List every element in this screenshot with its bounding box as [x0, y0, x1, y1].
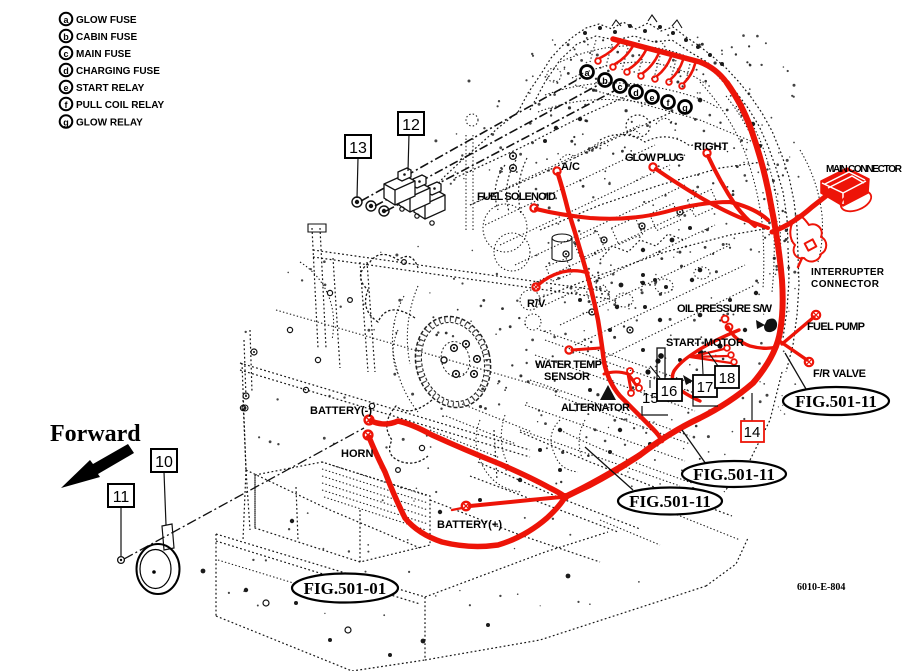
svg-text:10: 10: [155, 454, 173, 471]
svg-text:13: 13: [349, 140, 367, 157]
svg-text:BATTERY(-): BATTERY(-): [310, 405, 372, 417]
svg-text:START MOTOR: START MOTOR: [666, 337, 744, 349]
svg-text:e: e: [63, 83, 68, 93]
svg-text:F/R VALVE: F/R VALVE: [813, 368, 866, 380]
svg-text:R/V: R/V: [527, 298, 546, 310]
svg-text:GLOW RELAY: GLOW RELAY: [76, 118, 143, 129]
svg-text:GLOW FUSE: GLOW FUSE: [76, 15, 137, 26]
svg-text:HORN: HORN: [341, 448, 373, 460]
svg-text:c: c: [63, 49, 68, 59]
svg-text:INTERRUPTER: INTERRUPTER: [811, 267, 885, 278]
svg-text:CABIN FUSE: CABIN FUSE: [76, 32, 137, 43]
svg-text:12: 12: [402, 117, 420, 134]
svg-text:18: 18: [719, 370, 736, 387]
svg-text:b: b: [602, 76, 608, 86]
svg-text:FIG.501-11: FIG.501-11: [795, 392, 877, 411]
svg-text:FIG.501-01: FIG.501-01: [304, 579, 387, 598]
svg-text:11: 11: [113, 489, 130, 506]
svg-text:FIG.501-11: FIG.501-11: [693, 465, 775, 484]
svg-text:e: e: [649, 93, 654, 103]
svg-text:CHARGING FUSE: CHARGING FUSE: [76, 66, 160, 77]
svg-text:14: 14: [744, 424, 761, 441]
svg-text:BATTERY(+): BATTERY(+): [437, 519, 502, 531]
svg-text:SENSOR: SENSOR: [544, 371, 590, 383]
svg-text:MAIN FUSE: MAIN FUSE: [76, 49, 131, 60]
svg-text:ALTERNATOR: ALTERNATOR: [561, 402, 630, 414]
svg-text:RIGHT: RIGHT: [694, 141, 729, 153]
svg-text:6010-E-804: 6010-E-804: [797, 582, 845, 593]
svg-text:b: b: [63, 32, 69, 42]
svg-text:17: 17: [697, 379, 714, 396]
svg-text:d: d: [63, 66, 69, 76]
svg-text:Forward: Forward: [50, 421, 141, 447]
svg-text:FIG.501-11: FIG.501-11: [629, 492, 711, 511]
svg-text:A/C: A/C: [561, 161, 580, 173]
svg-text:FUEL SOLENOID: FUEL SOLENOID: [477, 191, 556, 203]
svg-text:g: g: [682, 103, 688, 113]
svg-text:START RELAY: START RELAY: [76, 83, 145, 94]
svg-text:CONNECTOR: CONNECTOR: [811, 279, 880, 290]
svg-text:GLOW PLUG: GLOW PLUG: [625, 152, 684, 164]
svg-text:d: d: [633, 88, 639, 98]
svg-text:16: 16: [661, 383, 678, 400]
svg-text:MAIN CONNECTOR: MAIN CONNECTOR: [826, 164, 903, 175]
svg-text:WATER TEMP: WATER TEMP: [535, 359, 602, 371]
svg-text:PULL COIL RELAY: PULL COIL RELAY: [76, 100, 164, 111]
svg-text:FUEL PUMP: FUEL PUMP: [807, 321, 865, 333]
svg-text:g: g: [63, 117, 69, 127]
svg-text:OIL PRESSURE S/W: OIL PRESSURE S/W: [677, 303, 773, 315]
